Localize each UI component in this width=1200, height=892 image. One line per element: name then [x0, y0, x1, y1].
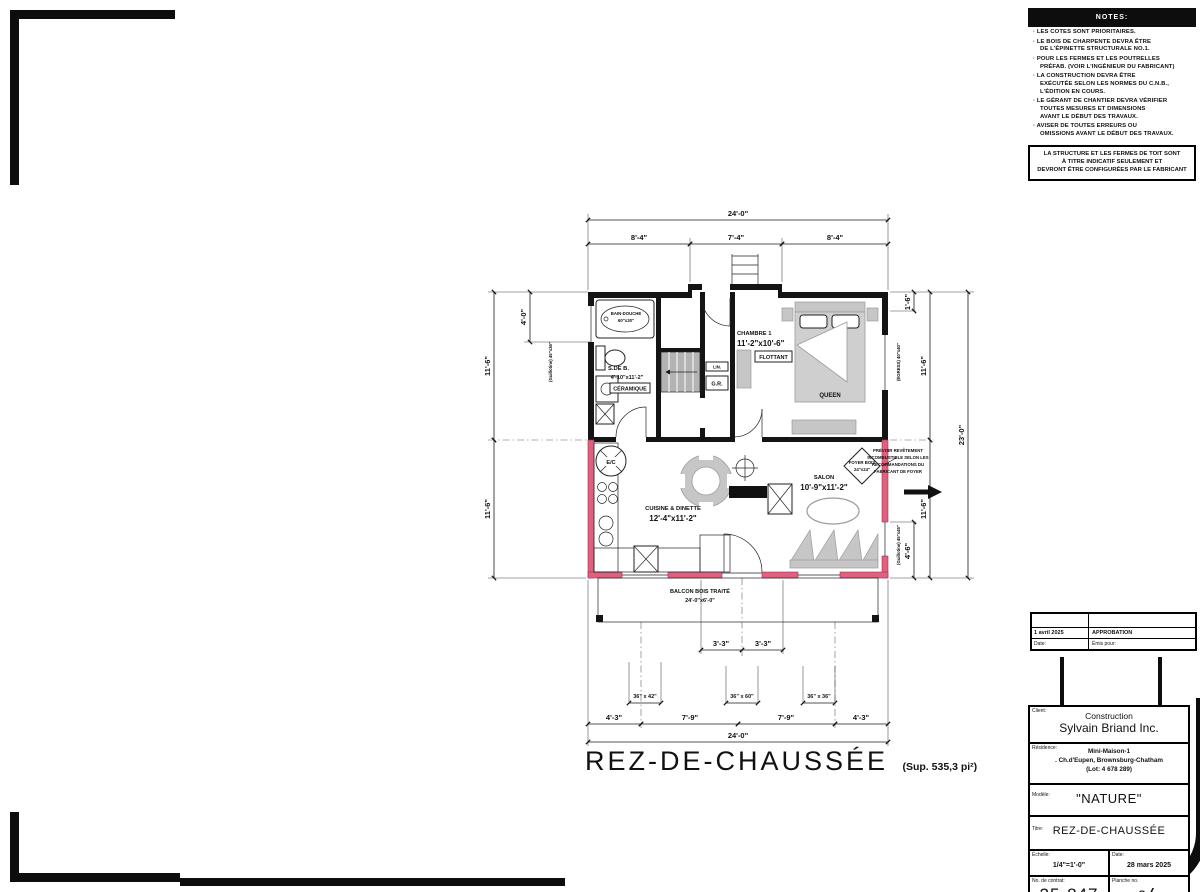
- linen-label: LIN.: [713, 365, 721, 370]
- section-arrow-icon: [928, 485, 942, 499]
- stove-note-line-3: RECOMMANDATIONS DU: [872, 462, 924, 467]
- dim-right-bottom: 11'-6": [919, 499, 928, 519]
- frame-bottom-edge: [180, 878, 565, 886]
- title-block: Client: Construction Sylvain Briand Inc.…: [1028, 705, 1190, 892]
- dim-bottom-a: 4'-3": [606, 713, 623, 722]
- title-block-contract-sheet: No. de contrat: 25-847 Planche no. 3/3: [1030, 877, 1188, 892]
- dim-top-total: 24'-0": [728, 209, 749, 218]
- dim-door-right: 3'-3": [755, 639, 772, 648]
- client-label: Client:: [1032, 708, 1046, 714]
- sheet-number: 3: [1138, 887, 1146, 892]
- bath-dims: 4'-10"x11'-2": [611, 375, 644, 381]
- dim-top-c: 8'-4": [827, 233, 844, 242]
- plan-title-area: REZ-DE-CHAUSSÉE (Sup. 535,3 pi²): [585, 746, 977, 777]
- window-bottom-right-size: 36" x 36": [807, 694, 831, 700]
- revision-header-row: Date: Émis pour:: [1032, 638, 1195, 649]
- title-block-sheet-title: Titre: REZ-DE-CHAUSSÉE: [1030, 825, 1188, 851]
- sheet-number-separator: /: [1146, 884, 1152, 892]
- scale-cell: Échelle: 1/4"=1'-0": [1030, 851, 1108, 875]
- water-heater-label: E/C: [606, 460, 615, 466]
- note-item: POUR LES FERMES ET LES POUTRELLES PRÉFAB…: [1028, 56, 1196, 71]
- entry-floor-tag: CÉRAMIQUE: [729, 486, 767, 498]
- bed: QUEEN: [782, 302, 878, 402]
- dim-door-left: 3'-3": [713, 639, 730, 648]
- revision-date-label: Date:: [1032, 639, 1089, 649]
- title-block-scale-date: Échelle: 1/4"=1'-0" Date: 28 mars 2025: [1030, 851, 1188, 877]
- contract-number: 25-847: [1030, 885, 1108, 892]
- window-bottom-mid-size: 36" x 60": [730, 694, 754, 700]
- revision-date: 1 avril 2025: [1032, 628, 1089, 638]
- bedroom-name: CHAMBRE 1: [737, 331, 772, 337]
- bathroom-labels: S.DE B. 4'-10"x11'-2" CÉRAMIQUE: [608, 366, 650, 393]
- sheet-number-label: Planche no.: [1112, 878, 1138, 884]
- client-name-line1: Construction: [1030, 711, 1188, 721]
- dim-top-b: 7'-4": [728, 233, 745, 242]
- scale-value: 1/4"=1'-0": [1030, 862, 1108, 869]
- revision-row-empty: [1032, 614, 1195, 627]
- dim-bottom-c: 7'-9": [778, 713, 795, 722]
- date-cell: Date: 28 mars 2025: [1108, 851, 1188, 875]
- kitchen-name: CUISINE & DINETTE: [645, 506, 701, 512]
- living-labels: SALON 10'-9"x11'-2": [800, 475, 859, 524]
- scale-label: Échelle:: [1032, 852, 1050, 858]
- model-label: Modèle:: [1032, 792, 1050, 798]
- plan-area: (Sup. 535,3 pi²): [902, 761, 977, 773]
- revision-row: 1 avril 2025 APPROBATION: [1032, 627, 1195, 638]
- dim-right-total: 23'-0": [957, 424, 966, 445]
- sofa: [790, 530, 878, 568]
- stair: [661, 352, 700, 392]
- window-right-bottom-label: (Guillotine) 45"x45": [896, 525, 901, 565]
- dim-left-sub: 4'-0": [519, 308, 528, 325]
- connector-line: [1158, 657, 1162, 707]
- dim-bottom-b: 7'-9": [682, 713, 699, 722]
- date-label: Date:: [1112, 852, 1124, 858]
- note-item: LE BOIS DE CHARPENTE DEVRA ÊTRE DE L'ÉPI…: [1028, 39, 1196, 54]
- stove-note-line-4: FABRICANT DE FOYER: [874, 469, 923, 474]
- frame-bottom-left-horizontal: [10, 873, 180, 882]
- stove-note-line-1: PRÉVOIR REVÊTEMENT: [873, 448, 923, 453]
- title-block-client: Client: Construction Sylvain Briand Inc.: [1030, 707, 1188, 744]
- dim-bottom-total: 24'-0": [728, 731, 749, 740]
- bed-size-label: QUEEN: [819, 393, 840, 399]
- tub-label-1: BAIN-DOUCHE: [611, 311, 642, 316]
- plan-title: REZ-DE-CHAUSSÉE: [585, 746, 888, 776]
- model-value: "NATURE": [1030, 791, 1188, 806]
- residence-line2: . Ch.d'Eupen, Brownsburg-Chatham: [1030, 756, 1188, 765]
- stove-note: PRÉVOIR REVÊTEMENT INCOMBUSTIBLE SELON L…: [867, 448, 942, 499]
- dining-table: [677, 452, 735, 510]
- balcony-label-2: 24'-0"x6'-0": [685, 598, 715, 604]
- window-left-label: (Guillotine) 45"x36": [548, 342, 553, 382]
- kitchen-labels: CUISINE & DINETTE 12'-4"x11'-2": [645, 506, 701, 523]
- bath-name: S.DE B.: [608, 366, 629, 372]
- dim-right-sub-bottom: 4'-6": [903, 542, 912, 559]
- entry-floor-label: CÉRAMIQUE: [731, 489, 765, 497]
- tub-label-2: 60"x30": [618, 318, 634, 323]
- revision-table: 1 avril 2025 APPROBATION Date: Émis pour…: [1030, 612, 1197, 651]
- residence-label: Résidence:: [1032, 745, 1057, 752]
- bath-floor-label: CÉRAMIQUE: [613, 385, 647, 393]
- contract-label: No. de contrat:: [1032, 878, 1065, 884]
- note-item: LES COTES SONT PRIORITAIRES.: [1028, 29, 1196, 37]
- title-block-model: Modèle: "NATURE": [1030, 791, 1188, 817]
- sheet-title-label: Titre:: [1032, 826, 1043, 832]
- frame-top-left-vertical: [10, 10, 19, 185]
- residence-line3: (Lot: 4 678 289): [1030, 765, 1188, 774]
- stove-label-2: 24"x24": [854, 467, 870, 472]
- ceiling-light: [732, 455, 758, 481]
- tv-unit: [768, 484, 792, 514]
- window-right-top-label: (ÉGRESS) 40"x40": [896, 343, 901, 381]
- revision-purpose: APPROBATION: [1089, 628, 1195, 638]
- dim-right-sub-top: 1'-6": [903, 293, 912, 310]
- note-item: LE GÉRANT DE CHANTIER DEVRA VÉRIFIER TOU…: [1028, 98, 1196, 121]
- window-bottom-left-size: 36" x 42": [633, 694, 657, 700]
- note-item: LA CONSTRUCTION DEVRA ÊTRE EXÉCUTÉE SELO…: [1028, 73, 1196, 96]
- bedroom-floor-label: FLOTTANT: [759, 355, 788, 361]
- revision-purpose-label: Émis pour:: [1089, 639, 1195, 649]
- truss-disclaimer-note: LA STRUCTURE ET LES FERMES DE TOIT SONT …: [1028, 145, 1196, 181]
- entry-steps: [732, 254, 758, 284]
- balcony-label-1: BALCON BOIS TRAITÉ: [670, 587, 730, 595]
- living-dims: 10'-9"x11'-2": [800, 483, 848, 492]
- title-block-residence: Résidence: Mini-Maison-1 . Ch.d'Eupen, B…: [1030, 744, 1188, 785]
- notes-header: NOTES:: [1028, 8, 1196, 27]
- closet-label: G.R.: [711, 382, 723, 388]
- date-value: 28 mars 2025: [1110, 862, 1188, 869]
- frame-bottom-left-vertical: [10, 812, 19, 882]
- frame-top-left-horizontal: [10, 10, 175, 19]
- dim-left-top: 11'-6": [483, 356, 492, 376]
- bedroom-dims: 11'-2"x10'-6": [737, 339, 785, 348]
- dim-top-a: 8'-4": [631, 233, 648, 242]
- drawing-sheet: 24'-0" 8'-4" 7'-4" 8'-4" 11'-6" 11'-6" 4…: [0, 0, 1200, 892]
- client-name-line2: Sylvain Briand Inc.: [1030, 721, 1188, 735]
- dim-right-top: 11'-6": [919, 356, 928, 376]
- contract-cell: No. de contrat: 25-847: [1030, 877, 1108, 892]
- stove-note-line-2: INCOMBUSTIBLE SELON LES: [867, 455, 928, 460]
- living-name: SALON: [814, 475, 834, 481]
- linen-closet: LIN. G.R.: [706, 362, 728, 390]
- water-heater: E/C: [596, 446, 626, 476]
- balcony: BALCON BOIS TRAITÉ 24'-0"x6'-0": [596, 578, 879, 622]
- general-notes-block: NOTES: LES COTES SONT PRIORITAIRES. LE B…: [1028, 8, 1196, 181]
- note-item: AVISER DE TOUTES ERREURS OU OMISSIONS AV…: [1028, 123, 1196, 138]
- bathtub: BAIN-DOUCHE 60"x30": [596, 300, 654, 338]
- kitchen-dims: 12'-4"x11'-2": [649, 514, 697, 523]
- connector-line: [1060, 657, 1064, 707]
- sheet-number-cell: Planche no. 3/3: [1108, 877, 1188, 892]
- dim-left-bottom: 11'-6": [483, 499, 492, 519]
- sheet-title-value: REZ-DE-CHAUSSÉE: [1030, 825, 1188, 837]
- dim-bottom-d: 4'-3": [853, 713, 870, 722]
